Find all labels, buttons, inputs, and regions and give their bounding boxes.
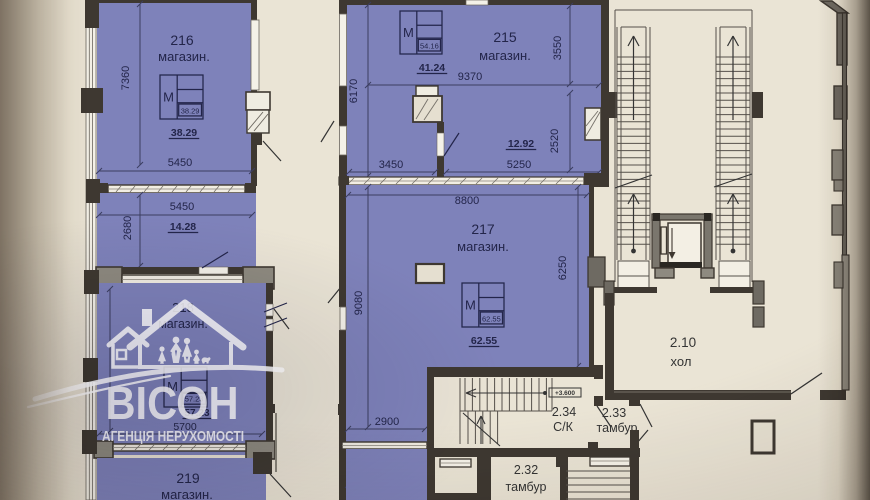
- svg-text:5250: 5250: [507, 159, 531, 171]
- svg-text:219: 219: [176, 470, 200, 486]
- svg-text:38.29: 38.29: [171, 127, 197, 139]
- svg-text:54.16: 54.16: [420, 41, 439, 50]
- svg-text:6170: 6170: [348, 79, 360, 103]
- svg-text:хол: хол: [671, 354, 692, 369]
- svg-text:217: 217: [471, 221, 495, 237]
- svg-text:3550: 3550: [552, 36, 564, 60]
- svg-text:М: М: [465, 297, 476, 312]
- svg-text:62.55: 62.55: [471, 335, 497, 347]
- svg-text:9370: 9370: [458, 71, 482, 83]
- svg-text:2.34: 2.34: [552, 405, 576, 419]
- svg-text:ВІСОН: ВІСОН: [106, 377, 239, 429]
- svg-text:2.32: 2.32: [514, 463, 538, 477]
- svg-text:М: М: [163, 89, 174, 104]
- svg-text:магазин.: магазин.: [457, 239, 509, 254]
- svg-text:М: М: [403, 25, 414, 40]
- svg-text:6250: 6250: [557, 256, 569, 280]
- svg-text:3450: 3450: [379, 159, 403, 171]
- svg-text:215: 215: [493, 29, 517, 45]
- svg-text:12.92: 12.92: [508, 138, 534, 150]
- svg-text:7360: 7360: [120, 66, 132, 90]
- svg-text:9080: 9080: [353, 291, 365, 315]
- svg-text:2680: 2680: [122, 216, 134, 240]
- svg-text:2.33: 2.33: [602, 406, 626, 420]
- svg-text:2520: 2520: [549, 129, 561, 153]
- svg-text:магазин.: магазин.: [161, 487, 213, 500]
- svg-text:14.28: 14.28: [170, 221, 196, 233]
- svg-text:5450: 5450: [168, 157, 192, 169]
- svg-text:41.24: 41.24: [419, 62, 445, 74]
- svg-text:8800: 8800: [455, 195, 479, 207]
- svg-text:216: 216: [170, 32, 194, 48]
- svg-text:5450: 5450: [170, 201, 194, 213]
- svg-text:+3.600: +3.600: [555, 390, 575, 397]
- svg-text:2900: 2900: [375, 416, 399, 428]
- svg-text:С/К: С/К: [553, 420, 574, 434]
- svg-text:магазин.: магазин.: [158, 49, 210, 64]
- svg-text:тамбур: тамбур: [506, 480, 547, 494]
- svg-text:магазин.: магазин.: [479, 48, 531, 63]
- svg-text:АГЕНЦІЯ НЕРУХОМОСТІ: АГЕНЦІЯ НЕРУХОМОСТІ: [102, 428, 244, 445]
- svg-text:62.55: 62.55: [482, 314, 501, 323]
- svg-text:2.10: 2.10: [670, 335, 696, 350]
- svg-text:38.29: 38.29: [181, 106, 200, 115]
